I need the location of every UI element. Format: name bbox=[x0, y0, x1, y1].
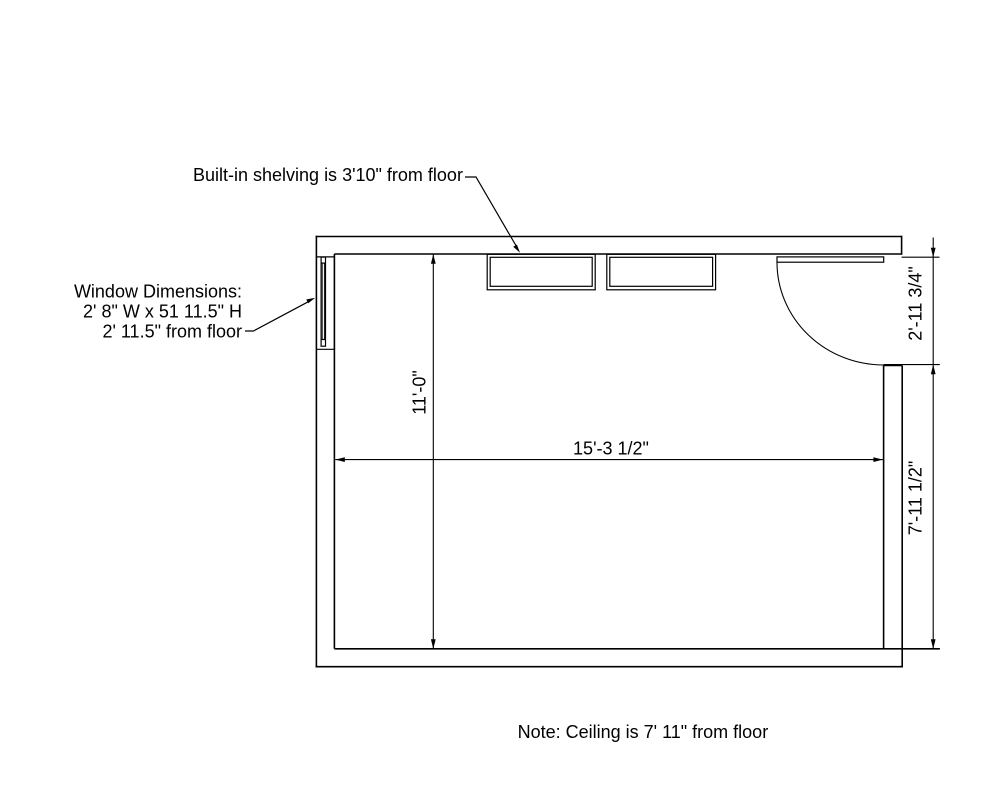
svg-text:2' 11.5" from floor: 2' 11.5" from floor bbox=[102, 322, 242, 342]
svg-text:2'-11 3/4": 2'-11 3/4" bbox=[906, 266, 926, 341]
svg-text:15'-3 1/2": 15'-3 1/2" bbox=[573, 439, 649, 459]
svg-text:11'-0": 11'-0" bbox=[410, 370, 430, 415]
svg-text:Note: Ceiling is 7' 11" from f: Note: Ceiling is 7' 11" from floor bbox=[518, 722, 769, 742]
svg-text:Window Dimensions:: Window Dimensions: bbox=[74, 282, 242, 302]
svg-text:2' 8" W x 51 11.5" H: 2' 8" W x 51 11.5" H bbox=[83, 302, 242, 322]
svg-text:Built-in shelving is 3'10" fro: Built-in shelving is 3'10" from floor bbox=[193, 165, 463, 185]
svg-text:7'-11 1/2": 7'-11 1/2" bbox=[906, 461, 926, 536]
